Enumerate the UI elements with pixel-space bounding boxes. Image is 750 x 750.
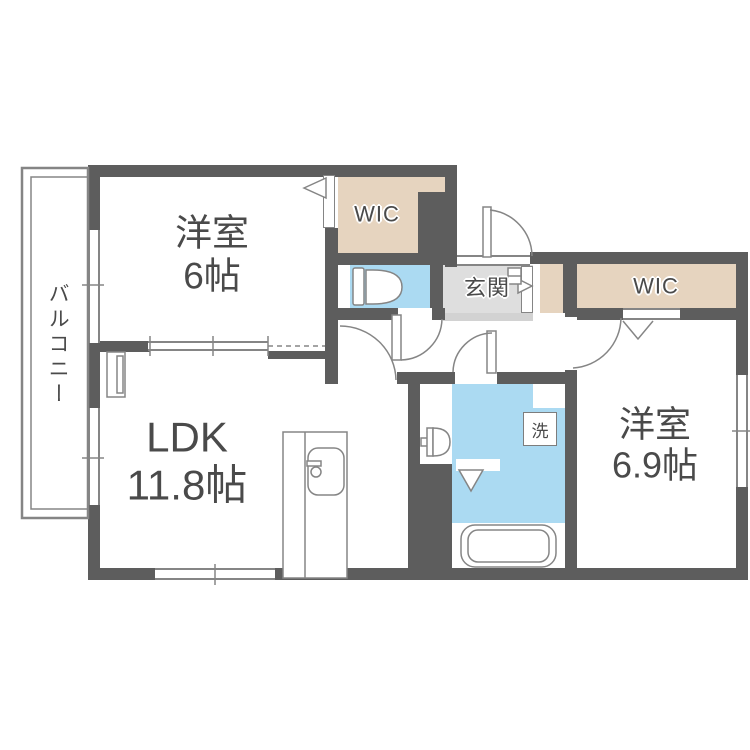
bedroom2-size: 6.9帖: [612, 445, 698, 486]
bedroom2-label: 洋室 6.9帖: [612, 404, 698, 487]
washer-box: 洗: [523, 412, 557, 446]
bedroom1-size: 6帖: [175, 255, 249, 298]
balcony-label: バルコニー: [45, 283, 69, 408]
bathtub-icon: [461, 525, 556, 567]
toilet-icon: [353, 268, 402, 305]
washbasin-icon: [421, 428, 450, 456]
floor-plan: 洗 バルコニー 洋室 6帖 LDK 11.8帖 洋室 6.9帖 WIC WIC …: [0, 0, 750, 750]
symbols-overlay: [0, 0, 750, 750]
ldk-label: LDK 11.8帖: [127, 414, 248, 511]
wic-right-label: WIC: [633, 273, 679, 298]
entrance-label: 玄関: [464, 275, 510, 300]
bedroom1-name: 洋室: [175, 212, 249, 255]
ldk-size: 11.8帖: [127, 462, 248, 510]
bedroom1-label: 洋室 6帖: [175, 212, 249, 297]
kitchen-sink-icon: [307, 448, 344, 495]
wic-top-label: WIC: [354, 201, 400, 226]
ldk-name: LDK: [127, 414, 248, 462]
pipe-space-box: [107, 352, 125, 397]
laundry-label: 洗: [532, 417, 549, 442]
bedroom2-name: 洋室: [612, 404, 698, 445]
